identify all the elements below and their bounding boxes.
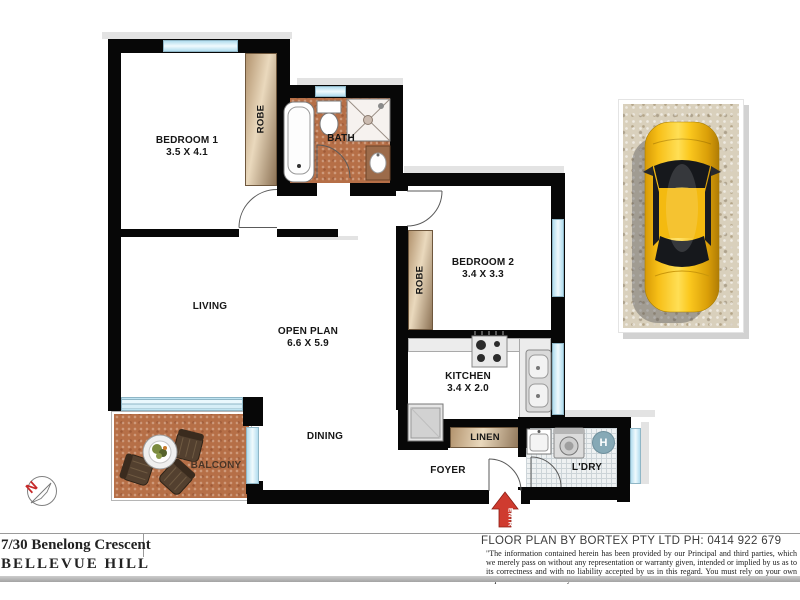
kitchen-bench-right	[519, 338, 551, 420]
door-opening	[317, 183, 350, 196]
room-label-robe2: ROBE	[415, 266, 426, 295]
room-label-bedroom1: BEDROOM 13.5 X 4.1	[156, 135, 218, 159]
window	[315, 86, 346, 97]
floor-plan-credit: FLOOR PLAN BY BORTEX PTY LTD PH: 0414 92…	[481, 535, 781, 547]
room-label-laundry: L'DRY	[572, 462, 602, 474]
room-label-bath: BATH	[327, 133, 355, 145]
room-label-balcony: BALCONY	[191, 460, 242, 472]
address-line1: 7/30 Benelong Crescent	[1, 536, 151, 555]
hot-water-unit: H	[592, 431, 615, 454]
wall-shadow	[641, 422, 649, 484]
wall	[277, 39, 290, 189]
north-arrow: N	[22, 477, 56, 506]
stove-knobs	[474, 331, 504, 335]
room-label-kitchen: KITCHEN3.4 X 2.0	[445, 371, 491, 395]
window	[552, 219, 564, 297]
room-label-linen: LINEN	[470, 432, 500, 444]
window	[163, 40, 238, 52]
window	[630, 428, 641, 484]
room-label-robe1: ROBE	[256, 105, 267, 134]
door-opening	[489, 490, 521, 504]
wall-shadow	[102, 32, 292, 39]
room-label-foyer: FOYER	[430, 465, 465, 477]
balcony-side-glass	[246, 427, 259, 484]
wall	[518, 487, 630, 500]
room-label-bedroom2: BEDROOM 23.4 X 3.3	[452, 257, 514, 281]
wall-shadow	[560, 410, 655, 417]
room-label-living: LIVING	[193, 301, 228, 313]
door-opening	[396, 191, 408, 226]
wall	[243, 397, 263, 426]
door-opening	[239, 229, 277, 237]
north-label: N	[22, 478, 40, 497]
wall	[398, 400, 408, 445]
window	[552, 343, 564, 415]
balcony-sliding-door	[121, 397, 243, 411]
wall	[108, 39, 121, 411]
balcony-floor	[114, 414, 249, 498]
wall	[398, 441, 448, 450]
property-address: 7/30 Benelong Crescent BELLEVUE HILL	[1, 536, 151, 574]
wall	[398, 173, 565, 186]
wall	[247, 490, 530, 504]
balcony-deck	[111, 411, 252, 501]
car-space-photo	[618, 99, 744, 333]
car-top-view	[623, 104, 741, 330]
footer-top-rule	[0, 533, 800, 534]
address-line2: BELLEVUE HILL	[1, 555, 151, 574]
footer-bottom-rule	[0, 576, 800, 582]
wall	[518, 417, 526, 457]
room-label-dining: DINING	[307, 431, 343, 443]
wall	[108, 229, 338, 237]
dishwasher	[408, 404, 443, 441]
wall-shadow	[297, 78, 403, 85]
entry-label: ENTRY	[507, 508, 514, 532]
wall	[290, 85, 403, 98]
room-label-open-plan: OPEN PLAN6.6 X 5.9	[278, 326, 338, 350]
wall-shadow	[404, 166, 564, 173]
wall	[518, 417, 631, 428]
wall	[443, 427, 450, 448]
floor-plan-page: BEDROOM 13.5 X 4.1 LIVING OPEN PLAN6.6 X…	[0, 0, 800, 600]
